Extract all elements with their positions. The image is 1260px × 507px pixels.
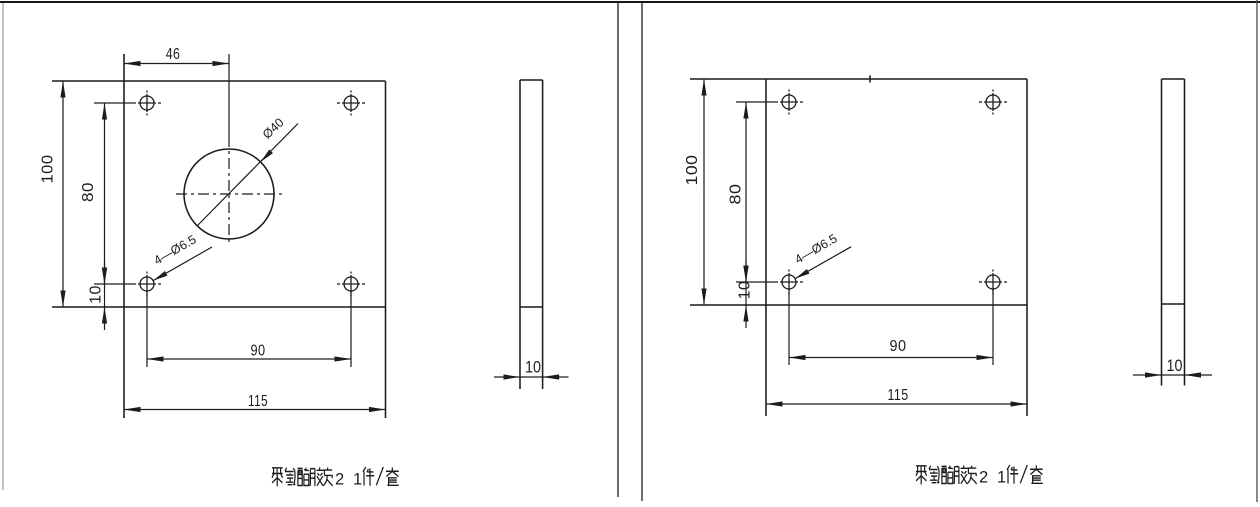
svg-text:90: 90 xyxy=(890,338,907,355)
svg-text:46: 46 xyxy=(166,46,181,63)
svg-text:100: 100 xyxy=(684,155,701,186)
svg-text:Ø40: Ø40 xyxy=(260,115,287,141)
svg-text:1: 1 xyxy=(353,471,362,489)
svg-text:10: 10 xyxy=(525,358,541,377)
svg-text:10: 10 xyxy=(737,281,754,300)
svg-text:80: 80 xyxy=(728,184,745,205)
svg-text:80: 80 xyxy=(80,182,97,202)
svg-text:10: 10 xyxy=(1167,356,1183,375)
svg-text:2: 2 xyxy=(979,469,988,487)
svg-text:90: 90 xyxy=(251,343,266,360)
svg-text:115: 115 xyxy=(888,387,909,404)
svg-text:2: 2 xyxy=(335,471,344,489)
svg-text:1: 1 xyxy=(997,469,1006,487)
svg-text:100: 100 xyxy=(40,155,57,184)
svg-text:4—Ø6.5: 4—Ø6.5 xyxy=(151,232,198,267)
svg-text:4—Ø6.5: 4—Ø6.5 xyxy=(792,231,839,266)
svg-text:10: 10 xyxy=(88,285,105,304)
svg-text:115: 115 xyxy=(248,393,268,410)
